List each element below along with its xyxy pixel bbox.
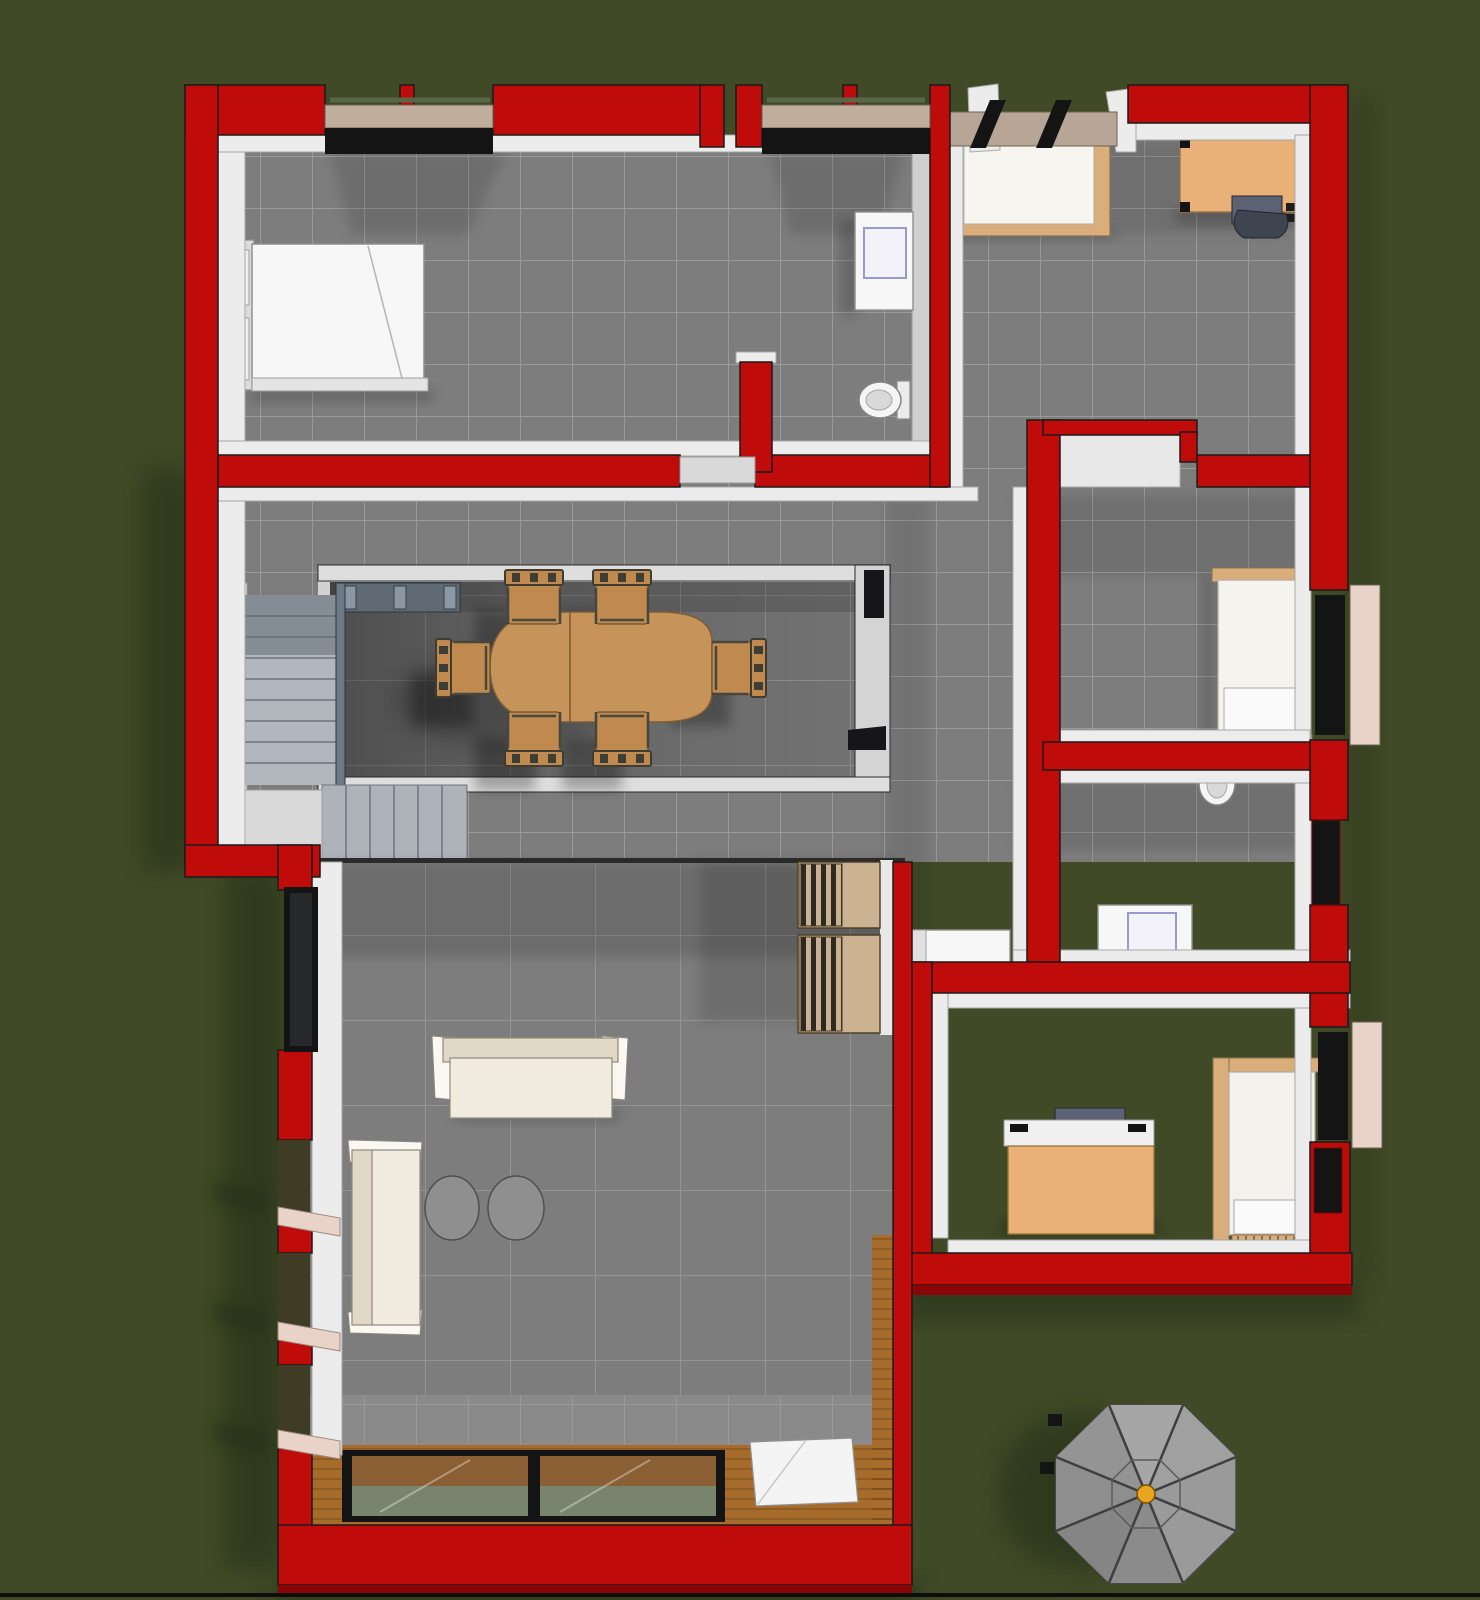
stair-upper-flight: [245, 595, 340, 785]
dining-chair: [505, 712, 563, 766]
stair-railing: [336, 583, 345, 785]
patio-umbrella: [1000, 1405, 1236, 1583]
bookshelf: [798, 860, 893, 1035]
sofa-small: [348, 1140, 422, 1335]
window-east-2: [1312, 820, 1340, 905]
dining-table: [490, 612, 712, 722]
window-west-1: [284, 887, 318, 1052]
computer-desk-southeast: [1000, 1108, 1160, 1236]
washbasin-cabinet: [855, 212, 913, 310]
living-room: [310, 858, 905, 1455]
stair-lower-flight: [322, 785, 467, 862]
double-bed: [230, 240, 432, 402]
stair-landing: [338, 583, 460, 612]
sliding-glass-door: [342, 1450, 725, 1522]
single-bed-northeast: [946, 138, 1113, 240]
void-glass-rail-bottom: [848, 726, 886, 750]
dining-chair: [593, 712, 651, 766]
dining-chair: [712, 639, 766, 697]
window-east-4: [1314, 1148, 1342, 1213]
office-chair: [1234, 210, 1288, 238]
window-north-b: [762, 100, 930, 154]
dining-chair: [593, 570, 651, 624]
sofa-large: [432, 1036, 628, 1122]
window-north-a: [325, 100, 493, 154]
void-glass-rail-top: [864, 570, 884, 618]
doorway-threshold: [680, 457, 755, 483]
bottom-border-line: [0, 1593, 1480, 1597]
dining-chair: [436, 639, 490, 697]
door-mat: [750, 1438, 858, 1506]
toilet-north: [859, 381, 910, 419]
umbrella-hub: [1137, 1485, 1155, 1503]
dining-chair: [505, 570, 563, 624]
floor-plan-svg: [0, 0, 1480, 1600]
floor-plan-render: [0, 0, 1480, 1600]
